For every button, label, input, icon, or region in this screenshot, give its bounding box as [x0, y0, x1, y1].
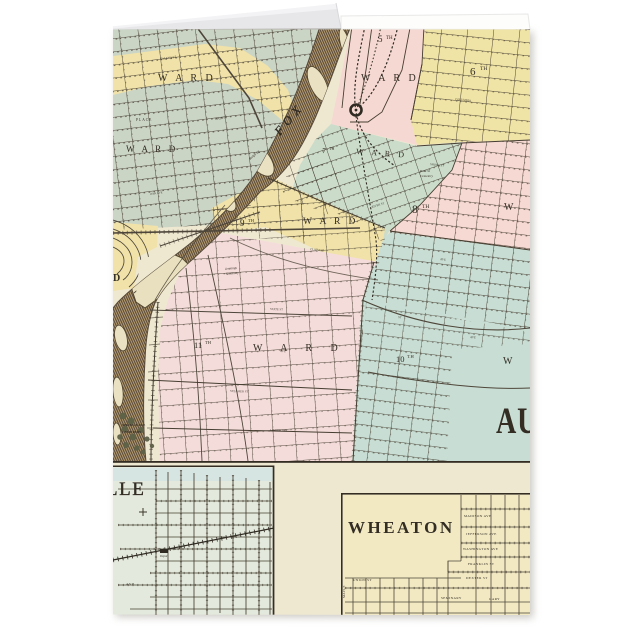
svg-text:GARY: GARY	[489, 597, 500, 601]
svg-text:5: 5	[378, 34, 383, 44]
svg-text:TH: TH	[248, 218, 255, 223]
svg-text:TH: TH	[386, 36, 393, 41]
svg-text:D: D	[113, 273, 120, 284]
svg-text:FRANKLIN ST: FRANKLIN ST	[468, 562, 495, 566]
svg-text:UNION ST: UNION ST	[353, 578, 372, 582]
svg-text:AVE: AVE	[280, 349, 286, 353]
svg-text:9: 9	[240, 218, 245, 228]
svg-text:W A R D: W A R D	[126, 144, 178, 154]
svg-text:WHEATON: WHEATON	[348, 518, 455, 537]
svg-text:MADISON AVE: MADISON AVE	[464, 514, 491, 518]
svg-text:W A R D: W A R D	[158, 73, 216, 84]
svg-text:TH: TH	[329, 146, 334, 151]
svg-text:AVE: AVE	[470, 335, 476, 340]
svg-text:DEXTER ST: DEXTER ST	[466, 576, 488, 580]
svg-text:PLACE: PLACE	[136, 118, 152, 122]
svg-text:LINDEN AVE: LINDEN AVE	[270, 428, 288, 433]
svg-text:Root St: Root St	[419, 169, 431, 173]
svg-text:Depot: Depot	[159, 554, 167, 558]
svg-text:W A R D: W A R D	[303, 217, 358, 227]
svg-text:TH: TH	[480, 66, 487, 72]
svg-text:STATE ST: STATE ST	[270, 307, 283, 311]
svg-text:W: W	[503, 356, 513, 367]
svg-text:ST: ST	[398, 315, 402, 319]
svg-text:STEAMER ST: STEAMER ST	[230, 389, 249, 394]
svg-text:W: W	[504, 202, 514, 213]
svg-text:8: 8	[412, 204, 418, 216]
svg-text:JEFFERSON AVE: JEFFERSON AVE	[466, 532, 497, 536]
svg-text:AVE: AVE	[440, 257, 446, 262]
svg-text:SEMINARY: SEMINARY	[441, 596, 462, 600]
svg-text:W A R D: W A R D	[361, 73, 419, 84]
svg-text:MAPLE: MAPLE	[342, 585, 346, 598]
svg-text:10: 10	[396, 354, 405, 364]
svg-text:TH: TH	[422, 204, 429, 210]
svg-text:WASHINGTON AVE: WASHINGTON AVE	[463, 547, 498, 551]
svg-text:TH: TH	[205, 340, 212, 345]
svg-text:CEMETERY: CEMETERY	[122, 430, 142, 434]
svg-text:Cemetery: Cemetery	[420, 174, 433, 178]
svg-text:SPRING LAKE: SPRING LAKE	[122, 423, 146, 427]
svg-text:11: 11	[194, 340, 202, 350]
svg-text:T.H: T.H	[407, 354, 415, 359]
svg-text:W A R D: W A R D	[253, 343, 346, 354]
svg-text:6: 6	[470, 66, 476, 78]
svg-text:A V E: A V E	[126, 582, 134, 586]
